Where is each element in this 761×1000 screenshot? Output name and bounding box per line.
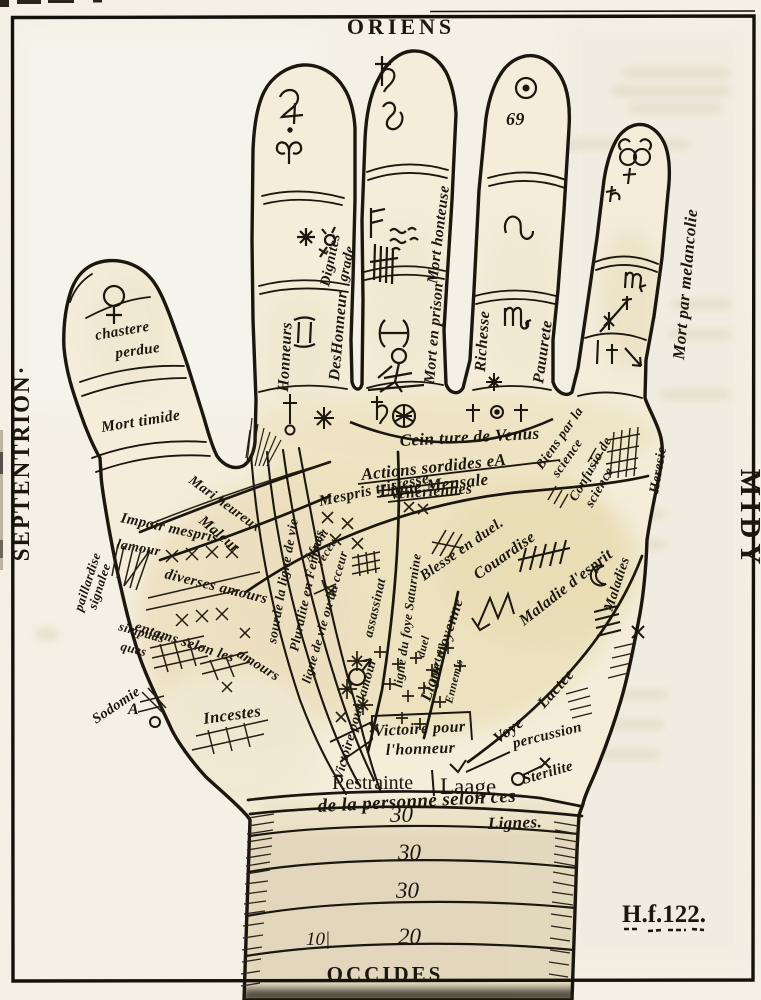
svg-text:A: A: [127, 701, 139, 718]
svg-text:Lignes.: Lignes.: [486, 812, 542, 833]
svg-text:30: 30: [397, 840, 422, 865]
svg-text:SEPTENTRION·: SEPTENTRION·: [9, 365, 34, 562]
svg-text:10|: 10|: [306, 929, 330, 950]
svg-text:20: 20: [398, 924, 422, 949]
svg-text:H.f.122.: H.f.122.: [622, 901, 706, 928]
svg-text:30: 30: [395, 878, 420, 903]
svg-text:MIDY: MIDY: [734, 469, 761, 570]
svg-text:69: 69: [506, 109, 525, 129]
svg-text:l'honneur: l'honneur: [386, 740, 456, 759]
svg-text:OCCIDES: OCCIDES: [327, 962, 444, 986]
svg-text:ORIENS: ORIENS: [347, 14, 455, 39]
